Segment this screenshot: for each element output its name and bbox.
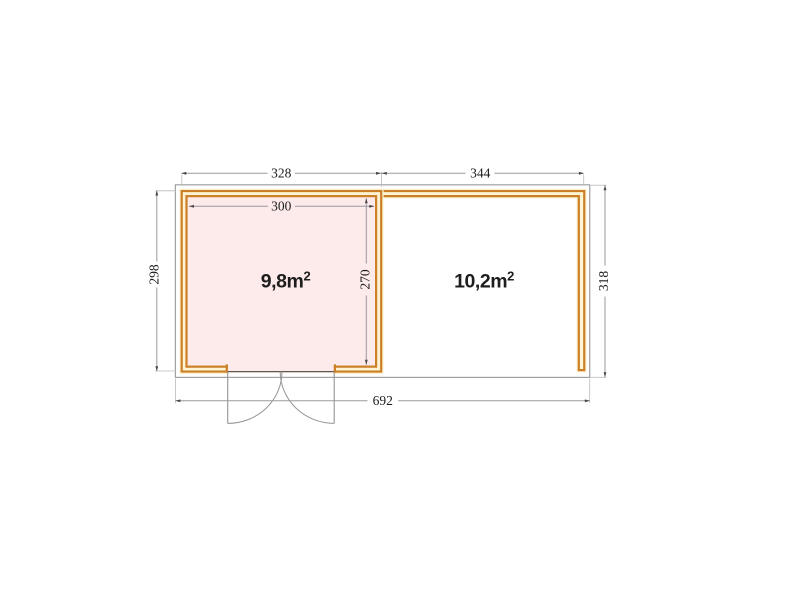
svg-text:270: 270	[358, 269, 373, 290]
svg-text:344: 344	[470, 166, 491, 181]
svg-text:328: 328	[271, 166, 292, 181]
svg-text:692: 692	[373, 393, 393, 408]
svg-text:10,2m2: 10,2m2	[454, 269, 514, 293]
svg-text:298: 298	[147, 264, 162, 285]
svg-text:300: 300	[271, 199, 292, 214]
svg-text:9,8m2: 9,8m2	[261, 269, 311, 293]
svg-text:318: 318	[596, 271, 611, 292]
